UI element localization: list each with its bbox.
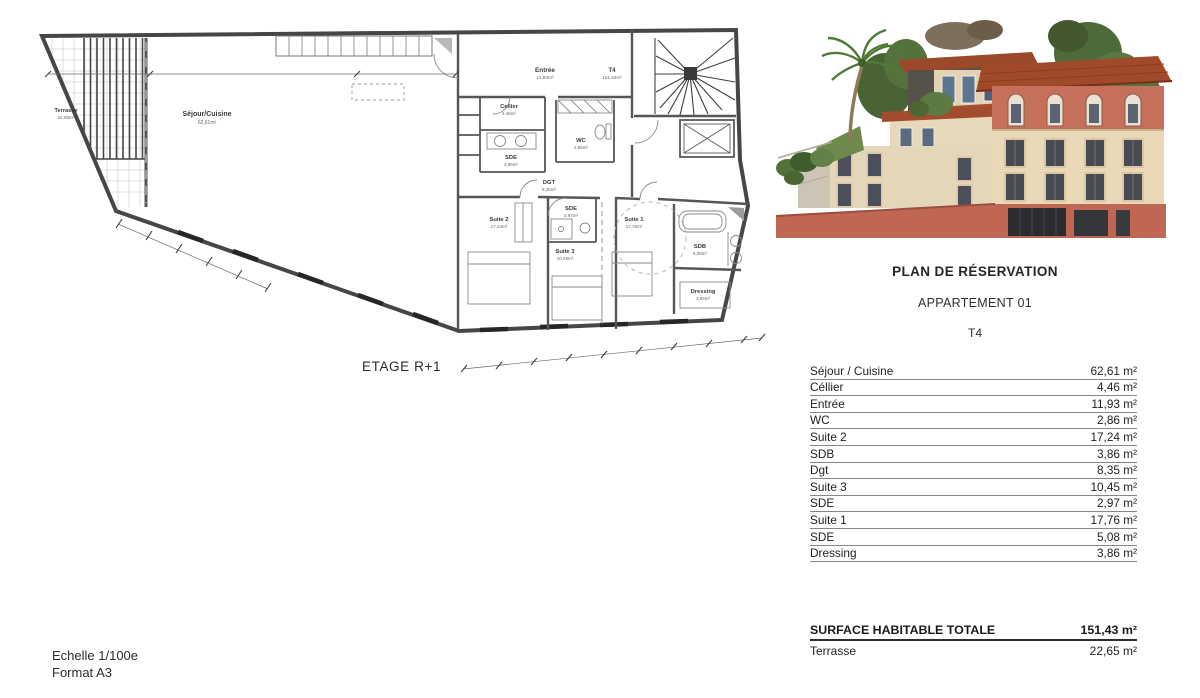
room-area-value: 8,35 m² bbox=[1097, 463, 1137, 477]
table-row: WC 2,86 m² bbox=[810, 413, 1137, 430]
table-row: SDE 5,08 m² bbox=[810, 529, 1137, 546]
cellier-label: Cellier bbox=[500, 104, 518, 110]
room-area-value: 17,76 m² bbox=[1090, 513, 1137, 527]
sde2-label: SDE bbox=[565, 206, 577, 212]
apartment-type: T4 bbox=[775, 326, 1175, 340]
exterior-walls bbox=[42, 30, 748, 331]
dgt-label: DGT bbox=[543, 180, 556, 186]
room-area-value: 5,08 m² bbox=[1097, 530, 1137, 544]
total-surface-row: SURFACE HABITABLE TOTALE 151,43 m² bbox=[810, 620, 1137, 641]
table-row: Suite 1 17,76 m² bbox=[810, 512, 1137, 529]
dgt-area: 8,35m² bbox=[542, 187, 557, 192]
room-area-value: 3,86 m² bbox=[1097, 447, 1137, 461]
room-label: Suite 1 bbox=[810, 513, 847, 527]
scale-note: Echelle 1/100e bbox=[52, 648, 138, 665]
terrasse-area: 22,65m² bbox=[58, 115, 75, 120]
suite2-area: 17,24m² bbox=[491, 224, 508, 229]
wardrobe-band bbox=[276, 36, 452, 100]
wc-area: 2,86m² bbox=[574, 145, 589, 150]
room-area-value: 4,46 m² bbox=[1097, 380, 1137, 394]
terrace-total-row: Terrasse 22,65 m² bbox=[810, 641, 1137, 658]
format-note: Format A3 bbox=[52, 665, 138, 682]
cellier-area: 4,46m² bbox=[502, 111, 517, 116]
table-row: Céllier 4,46 m² bbox=[810, 380, 1137, 397]
table-row: Entrée 11,93 m² bbox=[810, 396, 1137, 413]
sdb-area: 5,08m² bbox=[693, 251, 708, 256]
sdb-label: SDB bbox=[694, 244, 706, 250]
reservation-plan-sheet: Terrasse 22,65m² Séjour/Cuisine 62,61m² … bbox=[0, 0, 1200, 698]
room-area-value: 11,93 m² bbox=[1091, 397, 1137, 411]
table-row: Dgt 8,35 m² bbox=[810, 463, 1137, 480]
apartment-label: APPARTEMENT 01 bbox=[775, 296, 1175, 310]
dressing-area: 3,86m² bbox=[696, 296, 711, 301]
table-row: Séjour / Cuisine 62,61 m² bbox=[810, 363, 1137, 380]
document-title: PLAN DE RÉSERVATION bbox=[775, 264, 1175, 279]
room-label: WC bbox=[810, 413, 830, 427]
sejour-area: 62,61m² bbox=[198, 120, 217, 126]
table-row: Dressing 3,86 m² bbox=[810, 546, 1137, 563]
terrasse-label: Terrasse bbox=[55, 108, 78, 114]
t4-area: 151,43m² bbox=[602, 75, 622, 80]
sheet-notes: Echelle 1/100e Format A3 bbox=[52, 648, 138, 681]
floor-caption: ETAGE R+1 bbox=[362, 359, 441, 374]
floor-plan-drawing: Terrasse 22,65m² Séjour/Cuisine 62,61m² … bbox=[0, 0, 770, 400]
room-label: SDB bbox=[810, 447, 834, 461]
table-row: Suite 2 17,24 m² bbox=[810, 429, 1137, 446]
table-row: Suite 3 10,45 m² bbox=[810, 479, 1137, 496]
totals-block: SURFACE HABITABLE TOTALE 151,43 m² Terra… bbox=[810, 620, 1137, 658]
title-block: PLAN DE RÉSERVATION APPARTEMENT 01 T4 bbox=[775, 264, 1175, 340]
total-surface-value: 151,43 m² bbox=[1081, 623, 1137, 637]
total-surface-label: SURFACE HABITABLE TOTALE bbox=[810, 623, 995, 637]
suite1-label: Suite 1 bbox=[624, 217, 644, 223]
room-area-table: Séjour / Cuisine 62,61 m² Céllier 4,46 m… bbox=[810, 363, 1137, 562]
room-label: Suite 3 bbox=[810, 480, 847, 494]
room-area-value: 2,86 m² bbox=[1097, 413, 1137, 427]
room-label: Dgt bbox=[810, 463, 828, 477]
room-label: Séjour / Cuisine bbox=[810, 364, 893, 378]
room-label: SDE bbox=[810, 496, 834, 510]
room-label: Céllier bbox=[810, 380, 843, 394]
sde1-label: SDE bbox=[505, 155, 517, 161]
staircase bbox=[655, 38, 735, 157]
room-area-value: 62,61 m² bbox=[1090, 364, 1137, 378]
suite3-area: 10,45m² bbox=[557, 256, 574, 261]
suite2-label: Suite 2 bbox=[489, 217, 508, 223]
sde1-area: 3,86m² bbox=[504, 162, 519, 167]
wc-label: WC bbox=[576, 138, 586, 144]
room-area-value: 10,45 m² bbox=[1090, 480, 1137, 494]
dressing-label: Dressing bbox=[691, 289, 716, 295]
room-area-value: 2,97 m² bbox=[1097, 496, 1137, 510]
main-building bbox=[976, 56, 1172, 208]
suite1-area: 17,76m² bbox=[626, 224, 643, 229]
terrace-total-value: 22,65 m² bbox=[1090, 644, 1137, 658]
fixtures bbox=[434, 54, 744, 320]
room-label: Dressing bbox=[810, 546, 857, 560]
building-render bbox=[770, 8, 1190, 240]
sde2-area: 2,97m² bbox=[564, 213, 579, 218]
terrace-total-label: Terrasse bbox=[810, 644, 856, 658]
base-plinth bbox=[776, 204, 1166, 238]
table-row: SDE 2,97 m² bbox=[810, 496, 1137, 513]
terrace-grid bbox=[40, 36, 150, 212]
room-label: Entrée bbox=[810, 397, 845, 411]
table-row: SDB 3,86 m² bbox=[810, 446, 1137, 463]
room-area-value: 17,24 m² bbox=[1090, 430, 1137, 444]
suite3-label: Suite 3 bbox=[555, 249, 575, 255]
entree-label: Entrée bbox=[535, 67, 555, 74]
room-label: SDE bbox=[810, 530, 834, 544]
entree-area: 11,93m² bbox=[536, 75, 554, 81]
room-label: Suite 2 bbox=[810, 430, 847, 444]
sejour-label: Séjour/Cuisine bbox=[182, 111, 231, 118]
t4-label: T4 bbox=[608, 68, 616, 74]
room-area-value: 3,86 m² bbox=[1097, 546, 1137, 560]
elevator bbox=[680, 120, 734, 157]
